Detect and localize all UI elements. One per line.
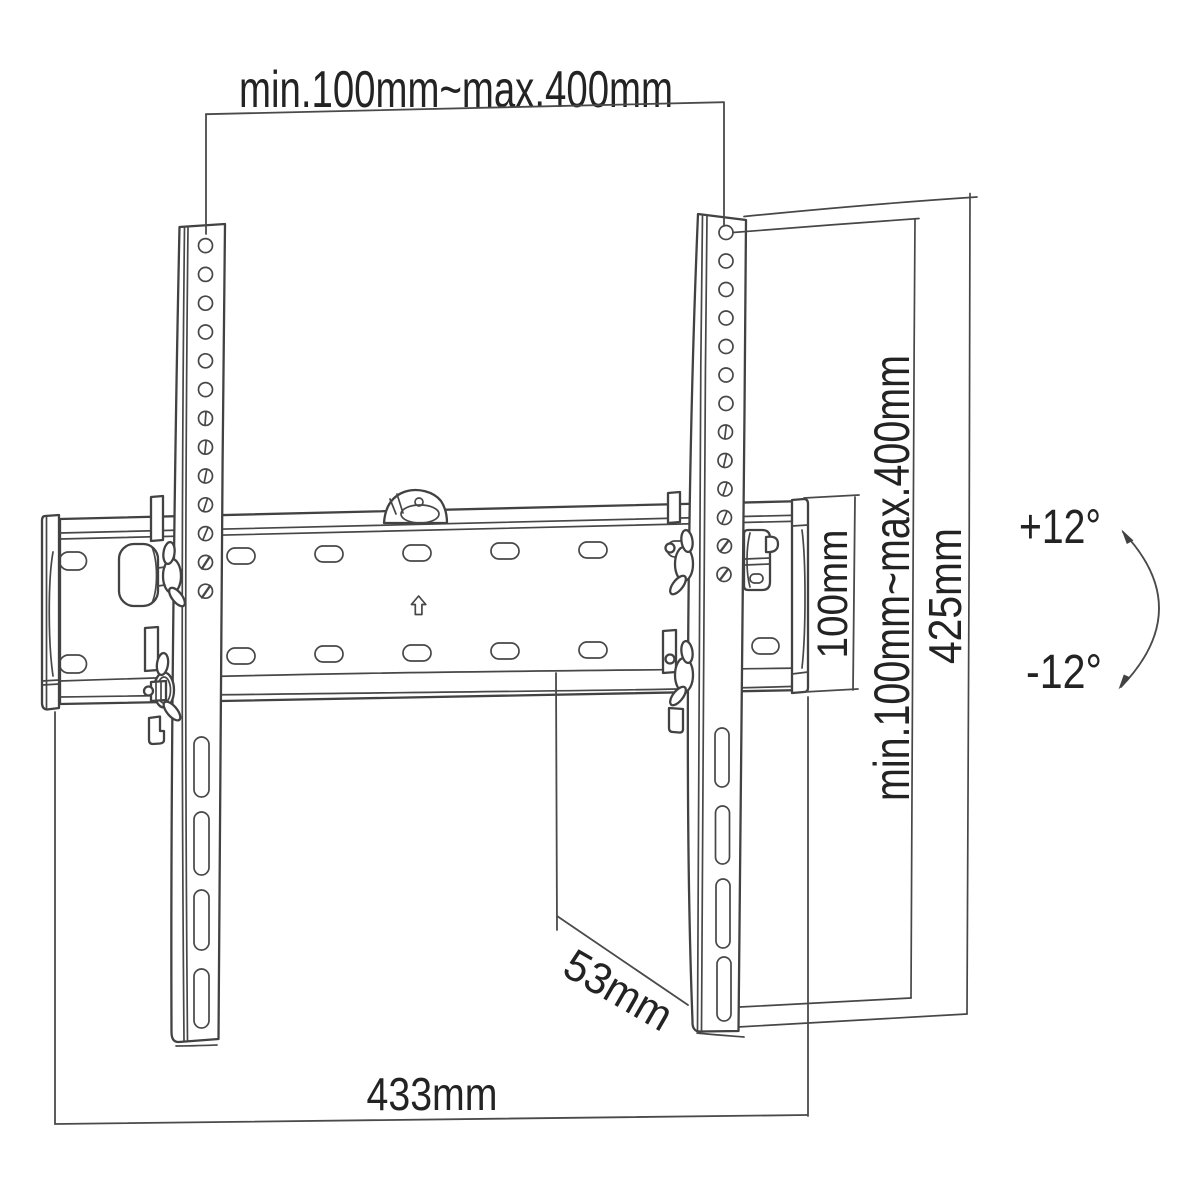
svg-text:min.100mm~max.400mm: min.100mm~max.400mm: [239, 61, 673, 119]
svg-text:425mm: 425mm: [919, 528, 971, 664]
svg-text:-12°: -12°: [1026, 646, 1102, 699]
svg-text:433mm: 433mm: [367, 1068, 498, 1120]
svg-text:100mm: 100mm: [809, 530, 857, 659]
svg-text:min.100mm~max.400mm: min.100mm~max.400mm: [864, 355, 920, 801]
svg-text:+12°: +12°: [1019, 501, 1101, 554]
